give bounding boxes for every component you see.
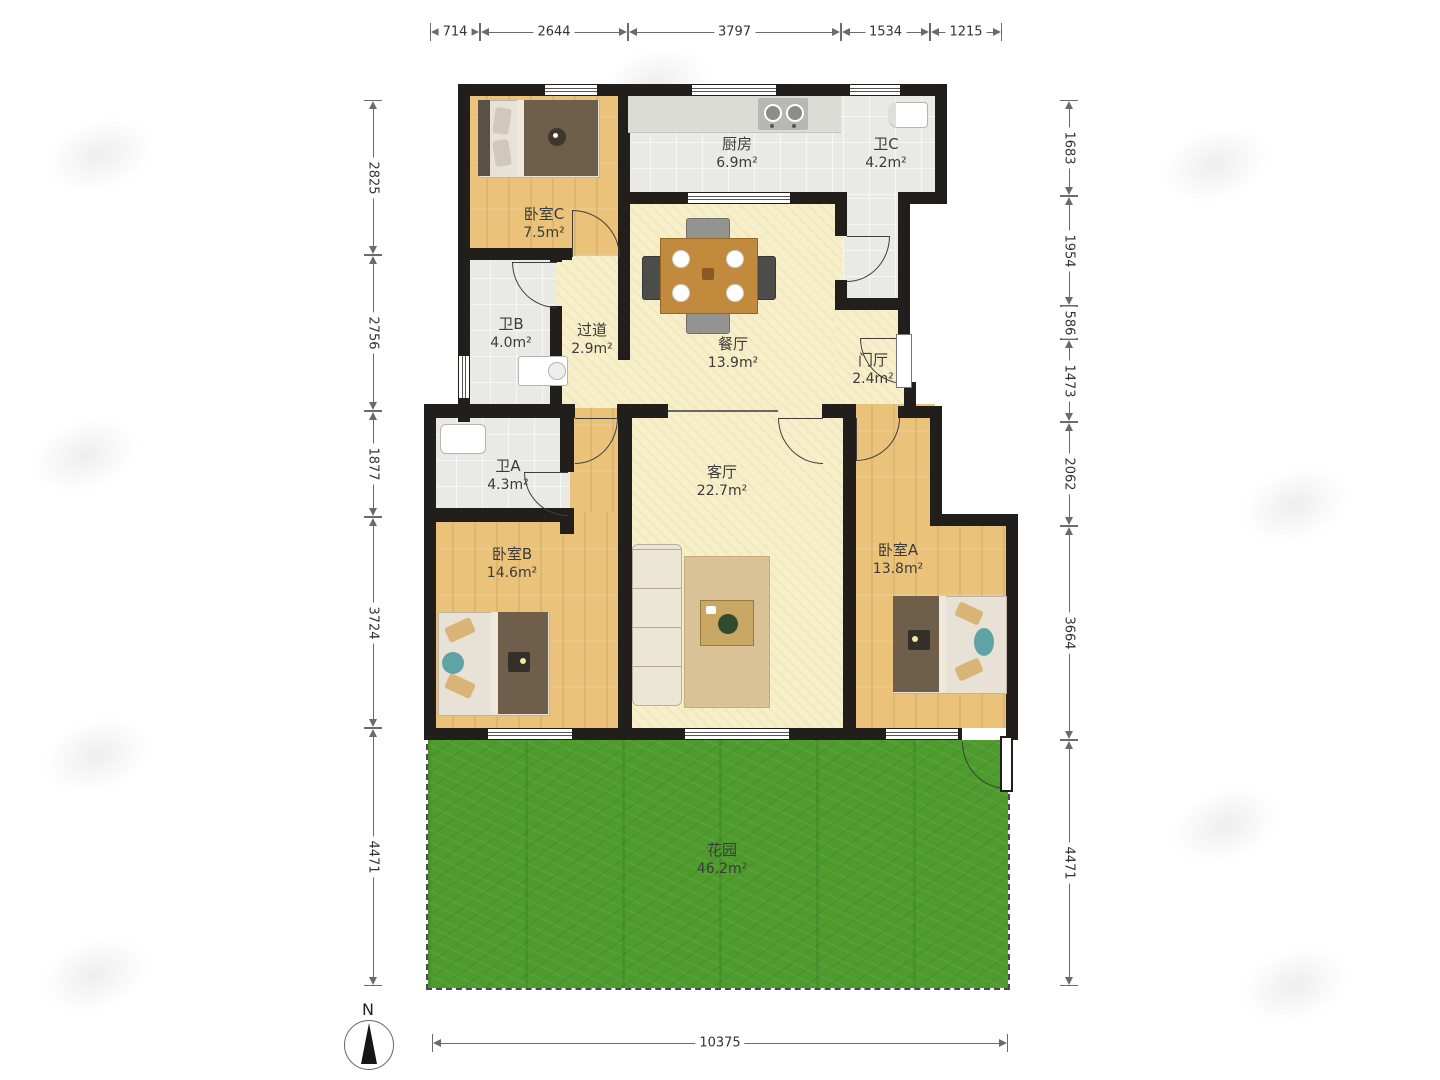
room-area: 4.2m² <box>831 154 941 173</box>
tray <box>706 606 716 614</box>
dim-value: 2644 <box>533 25 574 40</box>
watermark <box>32 925 158 1026</box>
dim-value: 2825 <box>366 157 381 198</box>
dim-value: 586 <box>1062 306 1077 339</box>
room-label-garden: 花园 46.2m² <box>667 840 777 879</box>
watermark <box>1162 775 1288 876</box>
room-area: 22.7m² <box>667 482 777 501</box>
room-name: 餐厅 <box>678 334 788 354</box>
dim-left-2756: 2756 <box>366 255 380 411</box>
round-cushion <box>442 652 464 674</box>
window <box>488 729 572 739</box>
dim-right-4471: 4471 <box>1062 740 1076 986</box>
window <box>685 729 789 739</box>
floor-plan: 卧室C 7.5m² 厨房 6.9m² 卫C 4.2m² 卫B 4.0m² 过道 … <box>0 0 1440 1080</box>
dim-value: 1215 <box>945 25 986 40</box>
bed-headboard <box>478 100 490 176</box>
sink <box>440 424 486 454</box>
wall <box>424 404 575 418</box>
washing-machine-drum <box>548 362 566 380</box>
bed-sheet-fold <box>517 100 524 176</box>
tray-dot <box>520 658 526 664</box>
wall <box>550 248 562 262</box>
room-label-bedroom-b: 卧室B 14.6m² <box>457 544 567 583</box>
room-label-bath-c: 卫C 4.2m² <box>831 134 941 173</box>
plate <box>672 284 690 302</box>
dim-value: 1473 <box>1062 360 1077 401</box>
window <box>886 729 958 739</box>
dim-top-3797: 3797 <box>628 25 841 39</box>
toilet-tank <box>888 102 896 126</box>
room-name: 卧室B <box>457 544 567 564</box>
dining-chair <box>686 312 730 334</box>
dim-value: 4471 <box>1062 842 1077 883</box>
window <box>850 85 900 95</box>
dim-value: 1534 <box>865 25 906 40</box>
dim-value: 2062 <box>1062 453 1077 494</box>
cushion-dot <box>553 133 558 138</box>
garden-gate-leaf <box>1000 736 1013 792</box>
room-name: 卧室C <box>489 204 599 224</box>
dim-right-586: 586 <box>1062 306 1076 339</box>
wall <box>930 514 1018 526</box>
room-area: 14.6m² <box>457 564 567 583</box>
stove-knob <box>792 124 796 128</box>
dim-right-1954: 1954 <box>1062 196 1076 306</box>
dim-top-1215: 1215 <box>930 25 1002 39</box>
dim-value: 3724 <box>366 602 381 643</box>
room-name: 卫C <box>831 134 941 154</box>
room-name: 客厅 <box>667 462 777 482</box>
bed-sheet-fold <box>939 596 946 692</box>
room-name: 卫A <box>453 456 563 476</box>
room-name: 卧室A <box>843 540 953 560</box>
wall <box>930 406 942 526</box>
room-name: 厨房 <box>682 134 792 154</box>
room-area: 2.4m² <box>818 370 928 389</box>
dim-left-4471: 4471 <box>366 728 380 986</box>
wall <box>618 410 632 732</box>
dim-left-1877: 1877 <box>366 411 380 517</box>
compass-north-label: N <box>344 1000 392 1019</box>
room-area: 2.9m² <box>537 340 647 359</box>
dim-value: 1954 <box>1062 230 1077 271</box>
sofa <box>632 544 682 706</box>
dim-top-2644: 2644 <box>480 25 628 39</box>
compass-icon <box>344 1020 394 1070</box>
watermark <box>1232 455 1358 556</box>
watermark <box>22 405 148 506</box>
room-area: 6.9m² <box>682 154 792 173</box>
room-area: 13.9m² <box>678 354 788 373</box>
bed-sheet-fold <box>491 612 498 714</box>
room-area: 46.2m² <box>667 860 777 879</box>
room-name: 门厅 <box>818 350 928 370</box>
room-label-bath-a: 卫A 4.3m² <box>453 456 563 495</box>
stove-burner <box>764 104 782 122</box>
dim-bottom-10375: 10375 <box>432 1036 1008 1050</box>
dim-right-1473: 1473 <box>1062 339 1076 422</box>
dim-right-3664: 3664 <box>1062 526 1076 740</box>
dim-value: 3664 <box>1062 612 1077 653</box>
room-area: 4.3m² <box>453 476 563 495</box>
wall <box>835 280 847 310</box>
dim-right-1683: 1683 <box>1062 100 1076 196</box>
dim-value: 1683 <box>1062 127 1077 168</box>
stove-knob <box>770 124 774 128</box>
watermark <box>37 105 163 206</box>
dim-value: 714 <box>439 25 472 40</box>
dim-value: 3797 <box>714 25 755 40</box>
dim-top-1534: 1534 <box>841 25 930 39</box>
dim-value: 1877 <box>366 443 381 484</box>
watermark <box>34 705 160 806</box>
window <box>692 85 776 95</box>
watermark <box>1232 935 1358 1036</box>
room-label-dining: 餐厅 13.9m² <box>678 334 788 373</box>
wall <box>424 406 436 740</box>
dim-value: 4471 <box>366 836 381 877</box>
watermark <box>1152 115 1278 216</box>
dim-top-714: 714 <box>430 25 480 39</box>
pillow <box>492 139 511 167</box>
room-label-bedroom-c: 卧室C 7.5m² <box>489 204 599 243</box>
room-label-kitchen: 厨房 6.9m² <box>682 134 792 173</box>
plant <box>718 614 738 634</box>
stove-burner <box>786 104 804 122</box>
window <box>545 85 597 95</box>
window <box>459 356 469 398</box>
bed-tray <box>508 652 530 672</box>
plate <box>726 250 744 268</box>
room-label-bedroom-a: 卧室A 13.8m² <box>843 540 953 579</box>
kitchen-counter <box>628 96 841 133</box>
room-name: 花园 <box>667 840 777 860</box>
tray-dot <box>912 636 918 642</box>
dim-value: 10375 <box>695 1036 744 1051</box>
table-centerpiece <box>702 268 714 280</box>
plate <box>726 284 744 302</box>
dim-left-2825: 2825 <box>366 100 380 255</box>
living-room-opening <box>668 410 778 412</box>
room-label-foyer: 门厅 2.4m² <box>818 350 928 389</box>
dim-value: 2756 <box>366 312 381 353</box>
round-cushion <box>974 628 994 656</box>
wall <box>898 192 910 310</box>
sliding-door-window <box>688 193 790 203</box>
dim-right-2062: 2062 <box>1062 422 1076 526</box>
wall <box>1006 514 1018 740</box>
compass-needle <box>361 1023 377 1064</box>
plate <box>672 250 690 268</box>
room-label-hallway: 过道 2.9m² <box>537 320 647 359</box>
room-name: 过道 <box>537 320 647 340</box>
room-area: 7.5m² <box>489 224 599 243</box>
dim-left-3724: 3724 <box>366 517 380 728</box>
room-label-living: 客厅 22.7m² <box>667 462 777 501</box>
dining-chair <box>686 218 730 240</box>
room-area: 13.8m² <box>843 560 953 579</box>
